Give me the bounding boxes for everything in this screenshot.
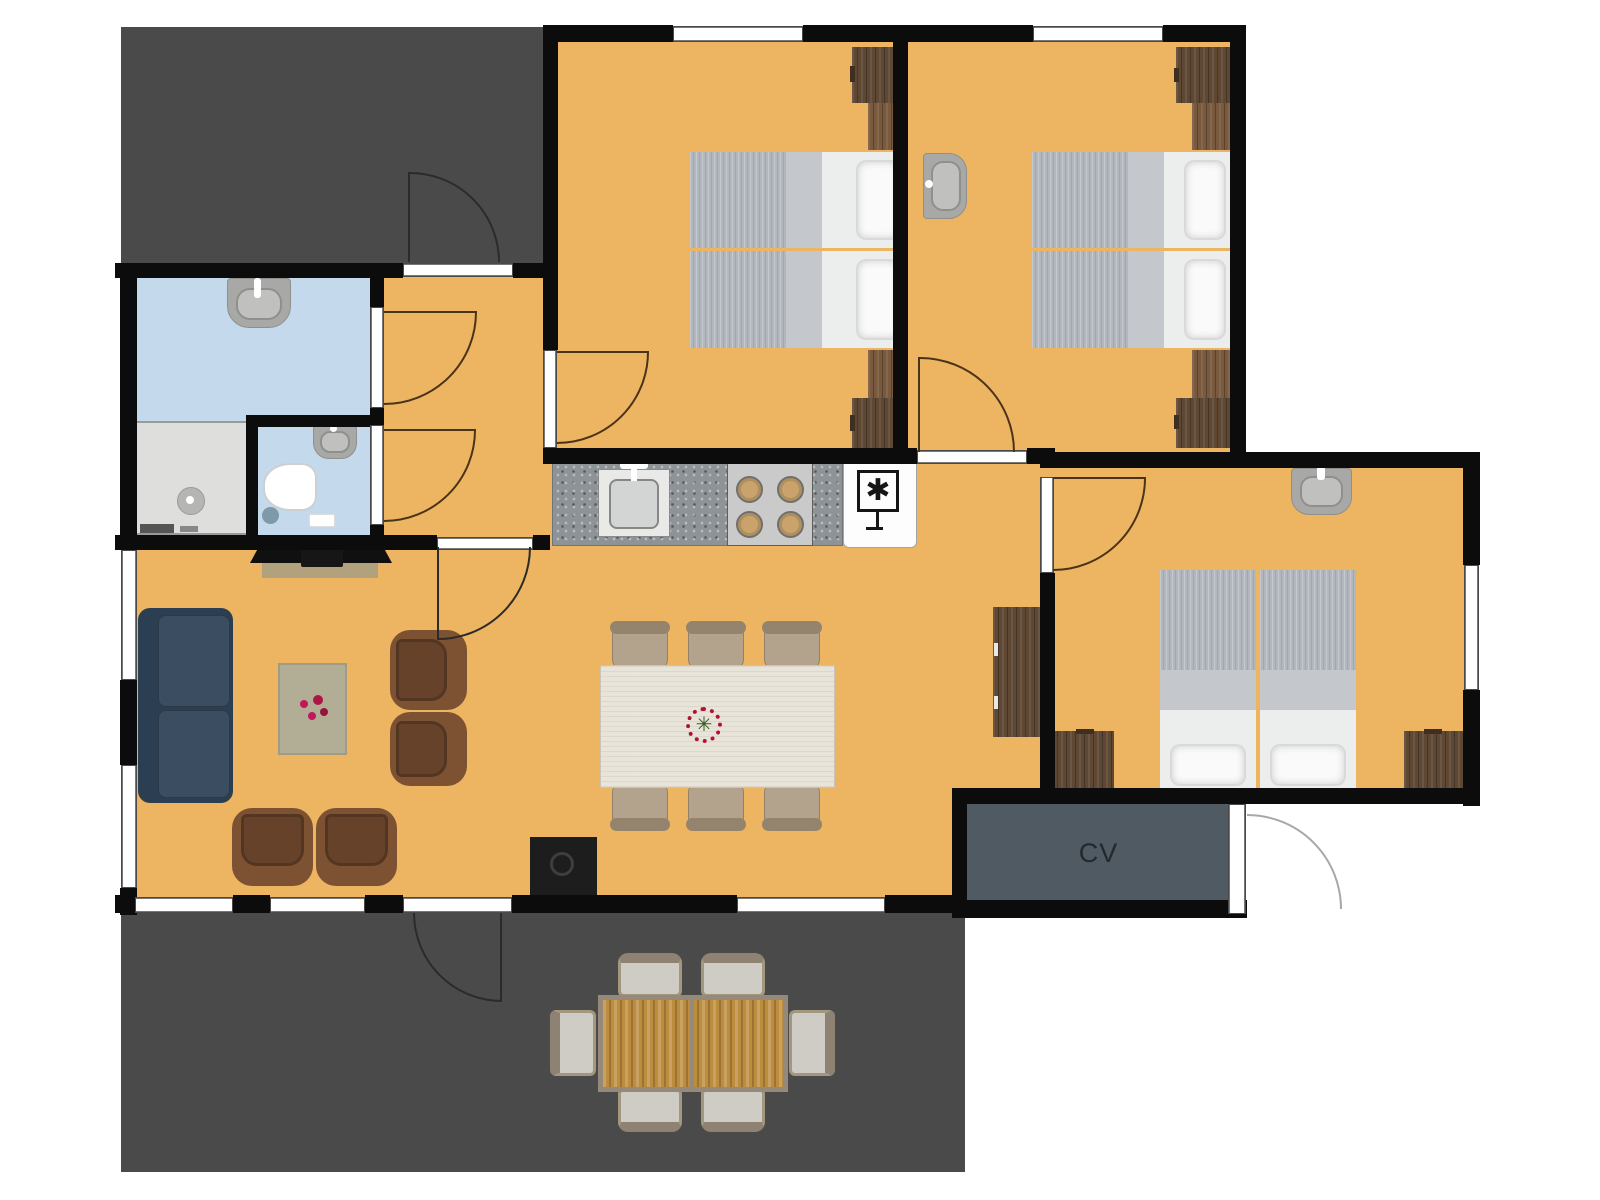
soap-dish [309,514,335,527]
bedroom-door-frame [543,350,557,448]
wardrobe [1192,350,1230,398]
armchair [390,630,467,710]
entry-door-frame [403,263,513,277]
wall [893,25,908,448]
burner-icon [736,511,763,538]
wall [115,263,403,278]
bedroom-door-leaf [1053,477,1146,479]
window [737,897,885,913]
bed-duvet [1260,570,1356,670]
dining-chair [688,626,744,668]
outdoor-chair [701,953,765,997]
fridge-symbol-foot [866,527,883,530]
entry-door-leaf [408,172,410,262]
bed-fold [1129,251,1164,348]
nightstand-handle [850,66,855,82]
rug [278,663,347,755]
bathroom-door-frame [370,307,384,408]
nightstand [1052,731,1114,792]
wall-sink-faucet-icon [925,180,933,188]
shower-controls-2 [180,526,198,532]
window [1464,565,1479,690]
wall [543,448,917,464]
bedroom-door-frame [1040,477,1054,573]
armchair [316,808,397,886]
kitchen-faucet-stem [631,469,637,481]
wall [543,25,558,350]
sofa-cushion [158,615,230,707]
wall [533,535,550,550]
trash-bin-icon [262,507,279,524]
pillow [1184,160,1226,240]
shower-head-center [186,496,194,504]
wall [233,895,270,913]
wall [543,25,673,42]
fridge-freezer-icon: ✱ [865,476,890,506]
wall-sink-bowl [931,161,961,211]
burner-icon [736,476,763,503]
window [270,897,365,913]
patio-door-leaf [500,913,502,1002]
wall [952,900,1247,918]
dining-chair [764,626,820,668]
wall [246,415,372,427]
wall [512,895,737,913]
cv-room-label: CV [1079,838,1119,869]
window [673,26,803,42]
nightstand [1176,47,1230,103]
pillow [1270,744,1346,786]
bed-duvet [1032,152,1129,248]
wall [115,895,135,913]
dining-chair [612,626,668,668]
outdoor-chair [618,953,682,997]
floor-plan: CV ✱ ✳ [0,0,1600,1200]
cv-door-frame [1228,804,1246,914]
window [121,765,137,888]
flower-icon: ✳ [696,715,713,735]
bed-fold [787,152,822,248]
nightstand [1176,398,1230,448]
bed-fold [787,251,822,348]
wall [803,25,1033,42]
nightstand-handle [1174,68,1179,82]
toilet-door-frame [370,425,384,525]
wall [1040,452,1480,468]
living-door-leaf [437,547,439,640]
sofa-cushion [158,710,230,798]
bedroom-sink-bowl [1300,476,1343,507]
nightstand [1404,731,1463,792]
bathroom-door-leaf [384,311,477,313]
outdoor-chair [701,1088,765,1132]
window [121,550,137,680]
wall [120,680,137,765]
shower-controls [140,524,174,533]
bed-fold [1260,670,1356,710]
bedroom-sink-faucet-icon [1317,466,1325,480]
outdoor-chair [618,1088,682,1132]
burner-icon [777,511,804,538]
kitchen-sink-bowl [609,479,659,529]
bedroom-door-leaf [557,351,649,353]
armchair [232,808,313,886]
terrace-bottom [121,913,965,1172]
wall [952,788,967,918]
nightstand-handle [1424,729,1442,734]
sideboard [993,607,1040,737]
wall [1230,25,1246,460]
wall [246,415,258,535]
outdoor-chair [550,1010,596,1076]
bed-duvet [1160,570,1256,670]
wall [120,263,137,550]
dining-chair [688,784,744,826]
rug-flowers [300,700,308,708]
bathroom-faucet-icon [254,278,261,298]
nightstand-handle [850,415,855,431]
toilet [263,463,317,511]
pillow [1184,259,1226,340]
burner-icon [777,476,804,503]
bedroom-door-leaf [918,357,920,452]
wardrobe [1192,103,1230,150]
outdoor-chair [789,1010,835,1076]
cv-room: CV [967,804,1230,902]
toilet-door-leaf [384,429,476,431]
sideboard-handle [994,643,998,656]
window [1033,26,1163,42]
flower-centerpiece: ✳ [686,707,722,743]
bedroom-door-frame [917,450,1027,464]
nightstand-handle [1076,729,1094,734]
bed-duvet [690,251,787,348]
wall [1040,573,1055,800]
wall [952,788,1480,804]
wall [365,895,403,913]
dining-chair [612,784,668,826]
fridge-symbol-box: ✱ [857,470,899,512]
wall [115,535,437,550]
wall [370,263,384,307]
wall [370,408,384,425]
sideboard-handle [994,696,998,709]
patio-door-frame [403,897,512,913]
shower-stall [135,421,248,535]
fireplace-ring-icon [550,852,574,876]
bed-duvet [1032,251,1129,348]
toilet-sink-bowl [320,431,350,453]
dining-chair [764,784,820,826]
bed-duvet [690,152,787,248]
bed-fold [1129,152,1164,248]
armchair [390,712,467,786]
wall [1463,452,1480,565]
outdoor-table-divider [690,1000,694,1087]
bed-fold [1160,670,1256,710]
pillow [1170,744,1246,786]
window [135,897,233,913]
nightstand-handle [1174,415,1179,429]
